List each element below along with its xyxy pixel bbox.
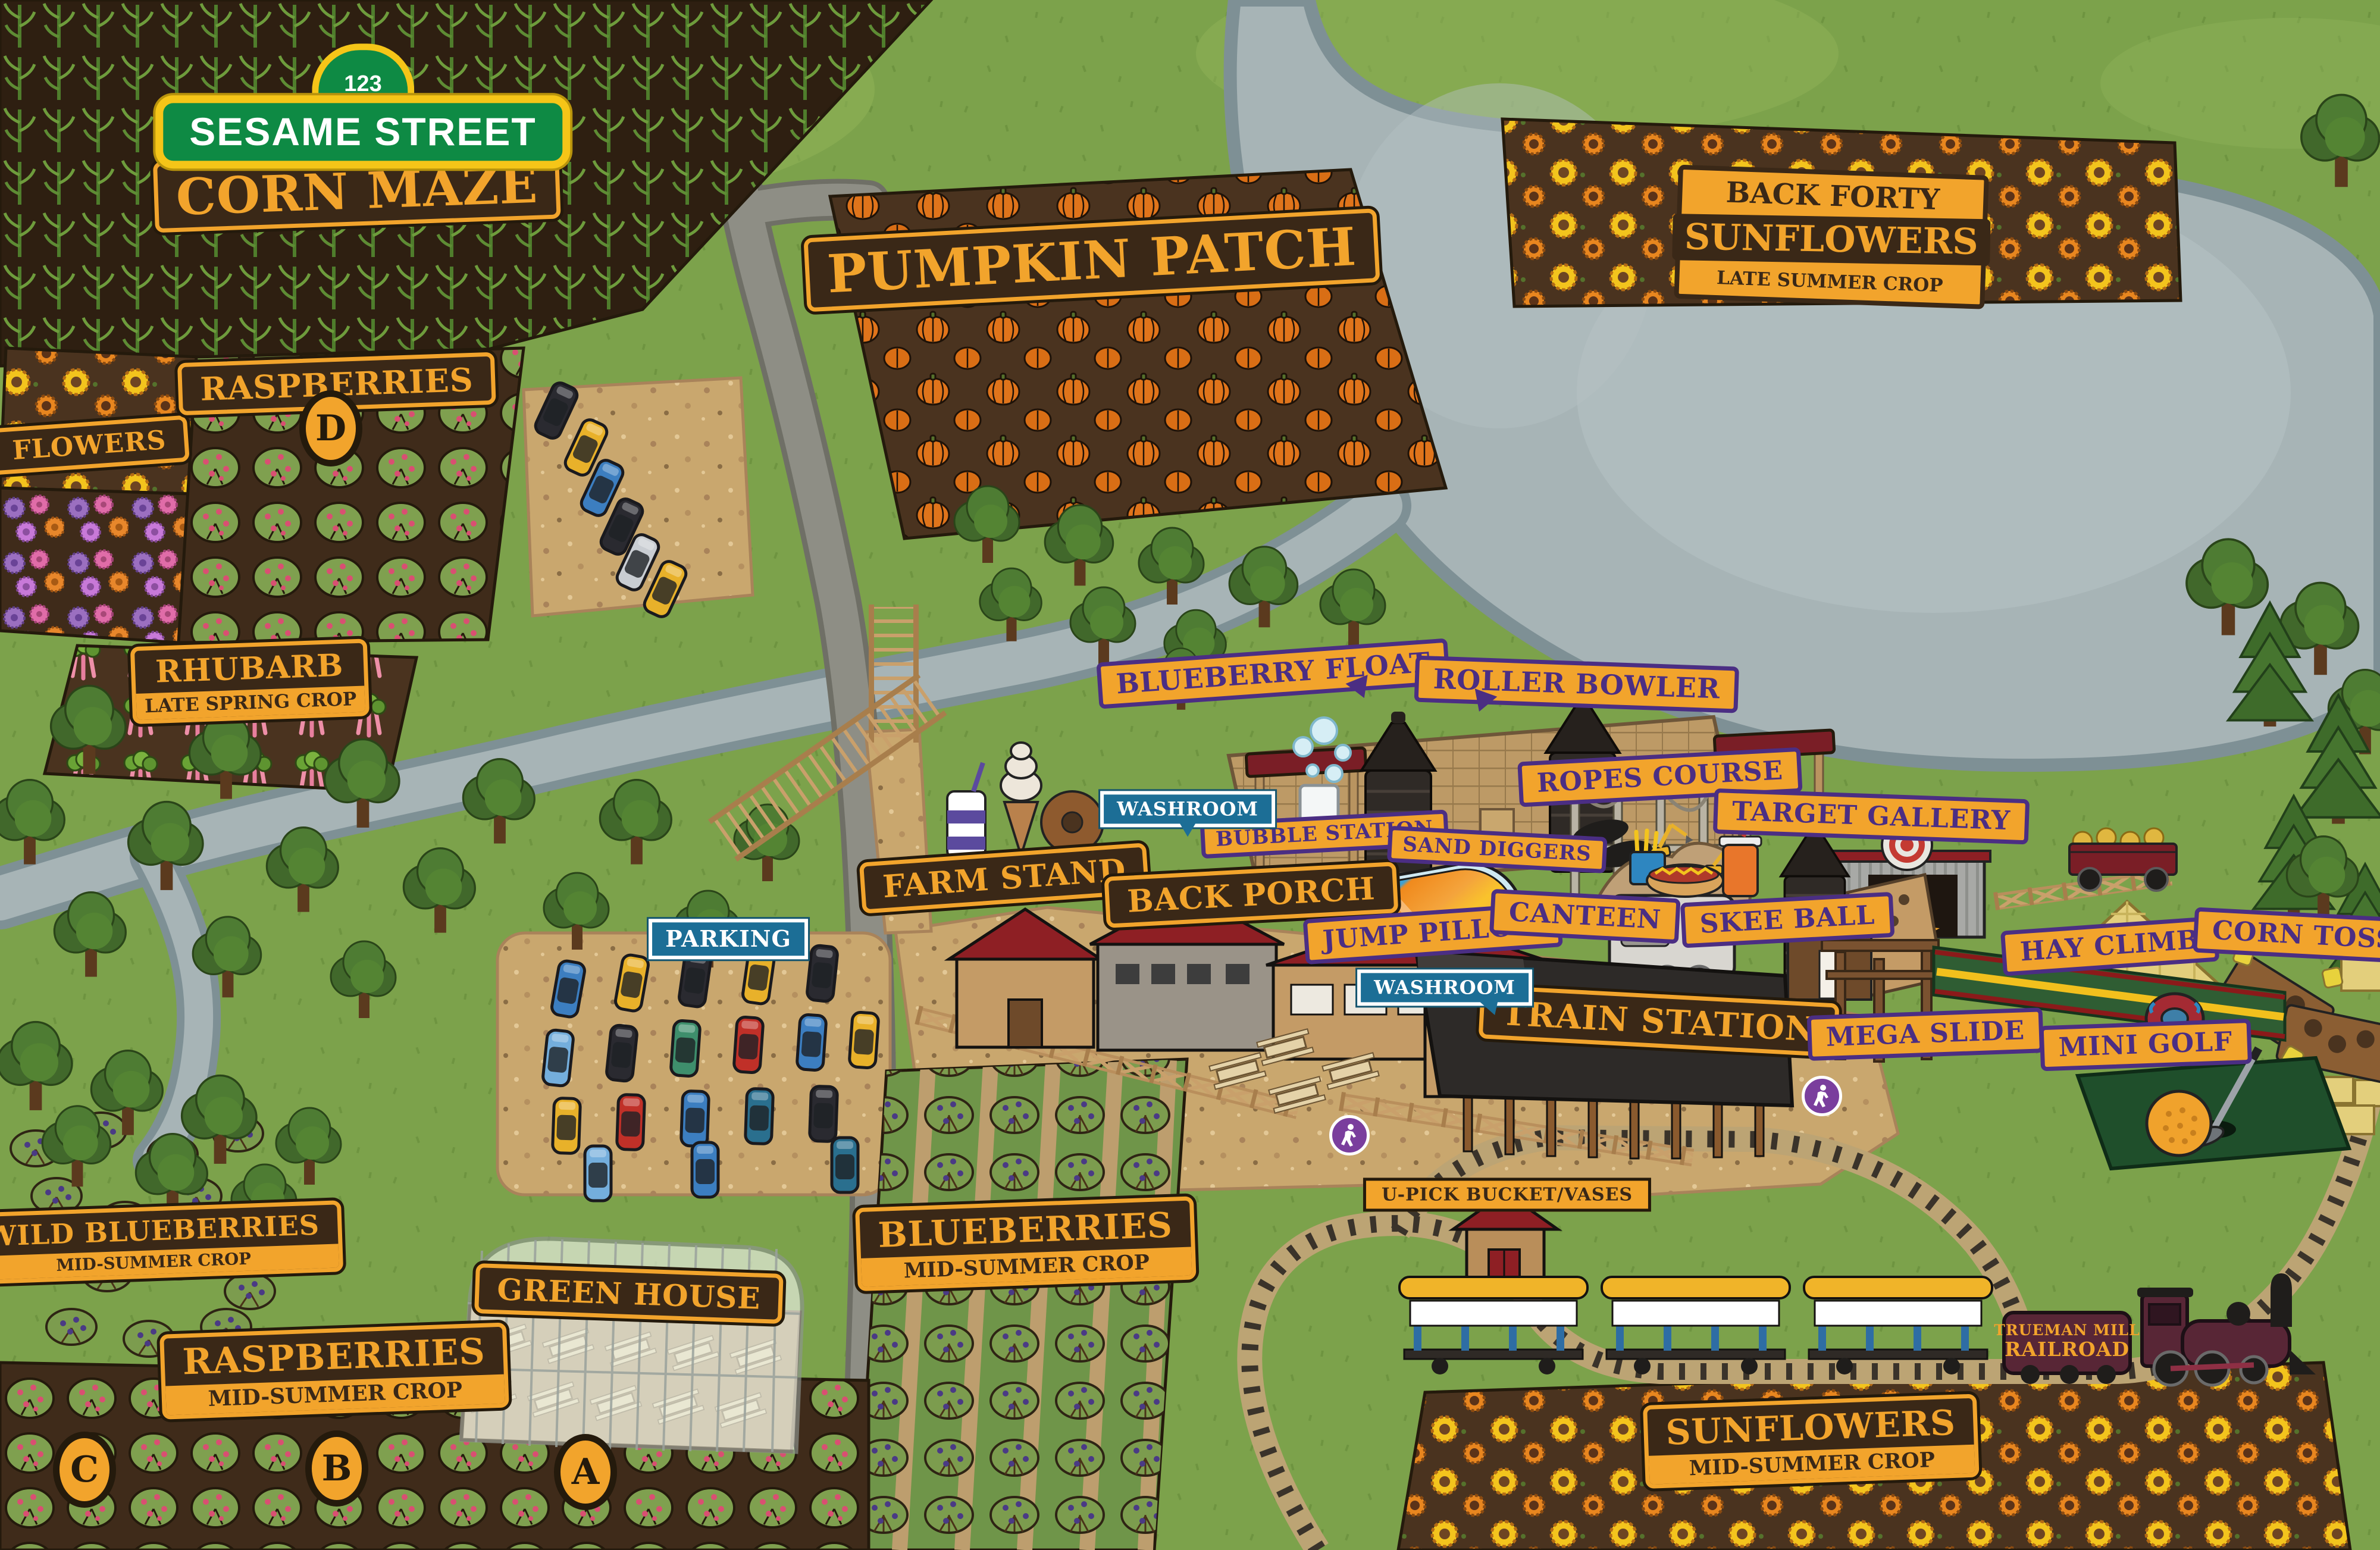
label-sunflowers-main: SUNFLOWERS MID-SUMMER CROP xyxy=(1643,1394,1980,1488)
label-raspberries-main: RASPBERRIES MID-SUMMER CROP xyxy=(159,1322,509,1419)
section-badge-d: D xyxy=(299,390,362,466)
label-green-house: GREEN HOUSE xyxy=(474,1263,784,1324)
sesame-street-number: 123 xyxy=(312,43,414,100)
pedestrian-crossing-icon xyxy=(1329,1115,1370,1156)
label-blueberries: BLUEBERRIES MID-SUMMER CROP xyxy=(855,1196,1197,1291)
label-rhubarb: RHUBARB LATE SPRING CROP xyxy=(130,638,369,724)
label-parking: PARKING xyxy=(649,919,808,959)
section-badge-b: B xyxy=(305,1430,368,1507)
sesame-street-sign: 123 SESAME STREET xyxy=(155,43,570,168)
section-badge-c: C xyxy=(53,1432,116,1508)
pedestrian-crossing-icon xyxy=(1802,1076,1842,1116)
label-mega-slide: MEGA SLIDE xyxy=(1807,1007,2044,1061)
blueberries-field xyxy=(851,1053,1196,1550)
section-badge-a: A xyxy=(554,1434,617,1510)
flowers-field-dahlias xyxy=(0,488,190,643)
train-passenger-cars xyxy=(1399,1277,1992,1374)
label-upick-bucket-vases: U-PICK BUCKET/VASES xyxy=(1363,1178,1651,1211)
label-railroad: TRUEMAN MILL RAILROAD xyxy=(1994,1322,2140,1360)
label-washroom-station: WASHROOM xyxy=(1357,969,1532,1006)
label-wild-blueberries: WILD BLUEBERRIES MID-SUMMER CROP xyxy=(0,1200,343,1285)
farm-map: 123 SESAME STREET CORN MAZE FLOWERS RASP… xyxy=(0,0,2380,1550)
sesame-street-plate: SESAME STREET xyxy=(155,95,570,168)
label-washroom-back-porch: WASHROOM xyxy=(1100,791,1275,827)
label-mini-golf: MINI GOLF xyxy=(2040,1019,2252,1071)
label-back-forty-sunflowers: BACK FORTY SUNFLOWERS LATE SUMMER CROP xyxy=(1674,165,1988,309)
